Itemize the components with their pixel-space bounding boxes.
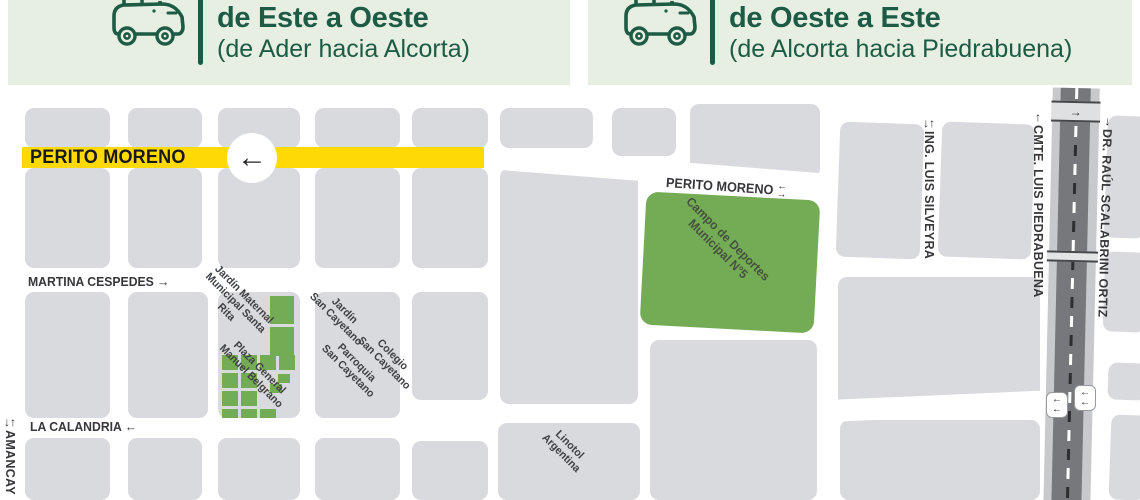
right-arrow-icon: → (157, 274, 169, 289)
direction-subtitle: (de Alcorta hacia Piedrabuena) (729, 36, 1072, 62)
turn-badge: ← ← (1046, 392, 1068, 418)
direction-subtitle: (de Ader hacia Alcorta) (217, 36, 470, 62)
city-block (25, 438, 110, 500)
city-block (500, 168, 638, 404)
city-block (315, 108, 400, 148)
route-map-infographic: de Este a Oeste (de Ader hacia Alcorta) … (0, 0, 1140, 500)
crosswalk (1047, 250, 1098, 262)
turn-badge: ← ← (1074, 385, 1096, 411)
two-way-arrows-icon: ↓↑ (923, 118, 935, 129)
city-block (500, 108, 593, 148)
city-block (128, 108, 202, 148)
city-block (128, 292, 208, 418)
city-block (938, 121, 1036, 259)
header-card-oeste-a-este: de Oeste a Este (de Alcorta hacia Piedra… (588, 0, 1132, 85)
city-block (315, 438, 400, 500)
route-street-name: PERITO MORENO (30, 147, 186, 169)
city-block (836, 122, 925, 260)
header-card-este-a-oeste: de Este a Oeste (de Ader hacia Alcorta) (8, 0, 570, 85)
header-divider (198, 0, 203, 65)
direction-title: de Oeste a Este (729, 3, 1072, 33)
city-block (1107, 362, 1140, 400)
city-block (838, 277, 1040, 407)
bus-icon (112, 0, 186, 52)
city-block (840, 420, 1040, 500)
city-block (412, 168, 488, 268)
up-arrow-icon: ↑ (1035, 112, 1041, 123)
two-way-bend-icon: ←→ (777, 183, 787, 200)
direction-title: de Este a Oeste (217, 3, 470, 33)
city-block (218, 168, 300, 268)
city-block (412, 441, 488, 500)
ing-luis-silveyra-label: ↓↑ ING. LUIS SILVEYRA (921, 118, 937, 259)
city-block (1109, 414, 1140, 500)
bus-icon (624, 0, 698, 52)
road-top-direction-box: → (1051, 100, 1100, 122)
city-block (412, 108, 488, 148)
left-arrow-icon: ← (1052, 405, 1062, 415)
route-direction-circle: ← (227, 133, 277, 183)
martina-cespedes-label: MARTINA CESPEDES → (28, 274, 169, 289)
right-arrow-icon: → (1070, 104, 1082, 118)
city-block (218, 438, 300, 500)
amancay-label: ↓↑ AMANCAY (2, 417, 18, 495)
scalabrini-ortiz-road: → (1043, 88, 1100, 500)
city-block (612, 108, 676, 156)
header-divider (710, 0, 715, 65)
left-arrow-icon: ← (1080, 398, 1090, 408)
left-arrow-icon: ← (125, 419, 137, 434)
city-block (128, 438, 202, 500)
cmte-luis-piedrabuena-label: ↑ CMTE. LUIS PIEDRABUENA (1030, 112, 1046, 298)
city-block (315, 168, 400, 268)
city-block (650, 340, 817, 500)
city-block (25, 292, 110, 418)
street-map: Campo de Deportes Municipal N°5 PERITO M… (0, 85, 1140, 500)
left-arrow-icon: ← (237, 141, 267, 175)
city-block (128, 168, 202, 268)
down-arrow-icon: ↓ (1104, 116, 1110, 127)
city-block (25, 108, 110, 148)
la-calandria-label: LA CALANDRIA ← (30, 419, 137, 434)
city-block (25, 168, 110, 268)
two-way-arrows-icon: ↓↑ (4, 417, 16, 428)
